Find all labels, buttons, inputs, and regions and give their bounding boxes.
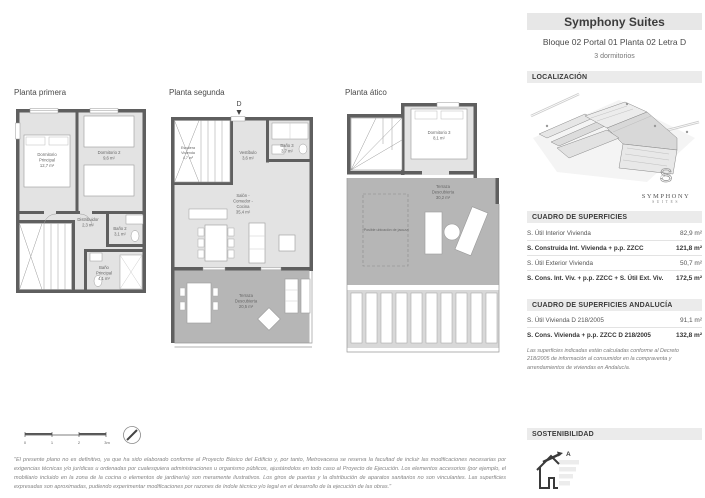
- compass-icon: [124, 427, 141, 444]
- room-label: 35,4 m²: [236, 210, 251, 215]
- entrance-marker-label: D: [236, 101, 241, 108]
- svg-text:1: 1: [51, 440, 54, 445]
- table-row: S. Útil Interior Vivienda 82,9 m²: [527, 226, 702, 241]
- room-label: Escalera: [181, 146, 195, 150]
- entrance-arrow-icon: [237, 110, 242, 115]
- section-sostenibilidad: SOSTENIBILIDAD: [527, 428, 702, 440]
- andalucia-table: S. Útil Vivienda D 218/2005 91,1 m² S. C…: [527, 313, 702, 342]
- room-label: 12,7 m²: [40, 163, 55, 168]
- unit-reference: Bloque 02 Portal 01 Planta 02 Letra D: [527, 37, 702, 47]
- room-label: 3,6 m²: [242, 156, 254, 161]
- room-label: Cocina: [236, 204, 250, 209]
- page-title: Symphony Suites: [527, 13, 702, 30]
- scale-labels: 0 1 2 3m: [24, 440, 111, 445]
- room-label: 9,6 m²: [103, 156, 115, 161]
- table-row: S. Cons. Int. Viv. + p.p. ZZCC + S. Útil…: [527, 271, 702, 285]
- room-label: Baño: [99, 265, 109, 270]
- room-label: Dormitorio 2: [98, 150, 121, 155]
- table-row: S. Cons. Vivienda + p.p. ZZCC D 218/2005…: [527, 328, 702, 342]
- entrance-door: [231, 117, 245, 122]
- svg-text:3m: 3m: [104, 440, 110, 445]
- row-value: 91,1 m²: [680, 317, 702, 324]
- row-value: 172,5 m²: [676, 275, 702, 282]
- room-label: Descubierta: [235, 299, 258, 304]
- section-localizacion: LOCALIZACIÓN: [527, 71, 702, 83]
- room-label: Dormitorio: [37, 152, 57, 157]
- stairs-icon: [351, 118, 402, 170]
- room-label: 3,1 m²: [114, 232, 126, 237]
- svg-text:S: S: [660, 166, 673, 187]
- row-value: 50,7 m²: [680, 260, 702, 267]
- room-label: Vivienda: [181, 151, 195, 155]
- room-label: 30,2 m²: [436, 195, 451, 200]
- logo-name: SYMPHONY: [633, 193, 699, 200]
- room-label: Baño 3: [280, 143, 294, 148]
- room-label: Principal: [96, 271, 112, 276]
- disclaimer-text: "El presente plano no es definitivo, ya …: [14, 456, 506, 492]
- plan-atico-drawing: Dormitorio 3 8,1 m² Terraza Descubierta …: [343, 100, 507, 366]
- room-label: Vestíbulo: [239, 150, 257, 155]
- room-label: 4,1 m²: [98, 276, 110, 281]
- svg-text:0: 0: [24, 440, 27, 445]
- stairs-icon: [20, 224, 72, 290]
- room-label: Baño 2: [113, 226, 127, 231]
- svg-text:2: 2: [78, 440, 81, 445]
- energy-rating-letter: A: [566, 451, 571, 458]
- bedrooms-count: 3 dormitorios: [527, 53, 702, 60]
- plan-atico-title: Planta ático: [345, 88, 387, 97]
- sidebar: Symphony Suites Bloque 02 Portal 01 Plan…: [527, 0, 702, 498]
- room-label: Salón -: [236, 193, 250, 198]
- section-superficies: CUADRO DE SUPERFICIES: [527, 211, 702, 223]
- plan-segunda-title: Planta segunda: [169, 88, 225, 97]
- kitchen-island: [189, 209, 227, 219]
- room-label: 20,5 m²: [239, 304, 254, 309]
- row-value: 121,8 m²: [676, 245, 702, 252]
- room-label: 2,3 m²: [82, 223, 94, 228]
- plan-segunda-drawing: D: [169, 97, 315, 359]
- plan-primera-title: Planta primera: [14, 88, 66, 97]
- plan-primera-drawing: Dormitorio Principal 12,7 m² Dormitorio …: [14, 103, 148, 303]
- row-value: 132,8 m²: [676, 332, 702, 339]
- row-label: S. Cons. Int. Viv. + p.p. ZZCC + S. Útil…: [527, 275, 663, 282]
- jacuzzi-label: *Posible ubicación de jacuzzi: [362, 228, 409, 232]
- scale-bar-icon: [25, 432, 106, 437]
- andalucia-note: Las superficies indicadas están calculad…: [527, 347, 699, 372]
- row-label: S. Cons. Vivienda + p.p. ZZCC D 218/2005: [527, 332, 651, 339]
- floorplan-sheet: Planta primera: [0, 0, 705, 498]
- room-label: Comedor -: [233, 199, 253, 204]
- room-label: Terraza: [436, 184, 451, 189]
- symphony-logo: S S SYMPHONY SUITES: [633, 165, 699, 204]
- table-row: S. Útil Exterior Vivienda 50,7 m²: [527, 256, 702, 271]
- symphony-monogram-icon: S S: [653, 165, 679, 187]
- room-label: Terraza: [239, 293, 254, 298]
- room-label: 3,7 m²: [281, 149, 293, 154]
- logo-subname: SUITES: [633, 200, 699, 204]
- room-label: 4,7 m²: [183, 156, 194, 160]
- row-label: S. Útil Vivienda D 218/2005: [527, 317, 604, 324]
- room-label: 8,1 m²: [433, 136, 445, 141]
- row-value: 82,9 m²: [680, 230, 702, 237]
- section-superficies-andalucia: CUADRO DE SUPERFICIES ANDALUCÍA: [527, 299, 702, 311]
- row-label: S. Útil Exterior Vivienda: [527, 260, 593, 267]
- row-label: S. Útil Interior Vivienda: [527, 230, 591, 237]
- table-row: S. Construida Int. Vivienda + p.p. ZZCC …: [527, 241, 702, 256]
- room-label: Descubierta: [432, 190, 455, 195]
- superficies-table: S. Útil Interior Vivienda 82,9 m² S. Con…: [527, 226, 702, 285]
- dining-table-icon: [198, 225, 234, 261]
- scale-and-compass: 0 1 2 3m: [20, 425, 150, 451]
- window: [437, 103, 459, 108]
- table-row: S. Útil Vivienda D 218/2005 91,1 m²: [527, 313, 702, 328]
- energy-rating-icon: A: [529, 444, 589, 494]
- row-label: S. Construida Int. Vivienda + p.p. ZZCC: [527, 245, 644, 252]
- room-label: Distribuidor: [77, 217, 99, 222]
- room-label: Dormitorio 3: [428, 130, 451, 135]
- room-label: Principal: [39, 158, 55, 163]
